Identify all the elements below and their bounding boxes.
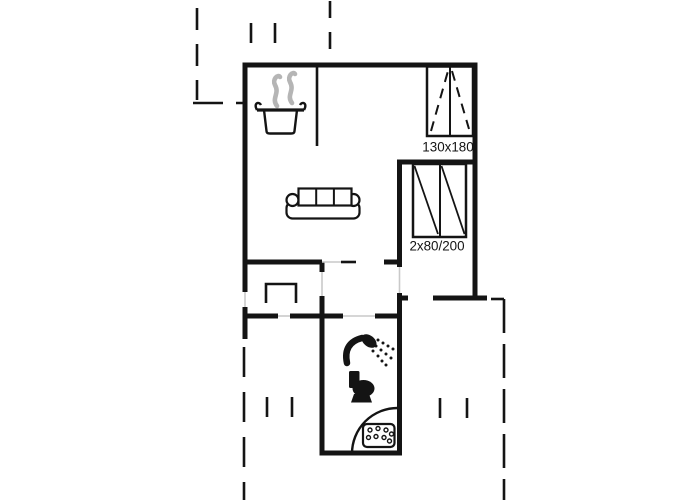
toilet-icon: [349, 371, 375, 403]
bunk-beds-size-label: 2x80/200: [409, 239, 464, 254]
drain-grate-icon: [363, 424, 395, 447]
double-bed-size-label: 130x180: [422, 140, 473, 155]
steam-icon: [274, 73, 295, 106]
cooking-pot-icon: [256, 103, 306, 134]
floor-plan-svg: 130x180 2x80/200: [0, 0, 700, 500]
double-bed-icon: [427, 67, 473, 137]
floor-plan-canvas: 130x180 2x80/200: [0, 0, 700, 500]
hall-closet: [266, 284, 296, 303]
shower-icon: [346, 331, 394, 366]
bunk-beds-icon: [413, 164, 466, 237]
sofa-icon: [287, 189, 360, 219]
